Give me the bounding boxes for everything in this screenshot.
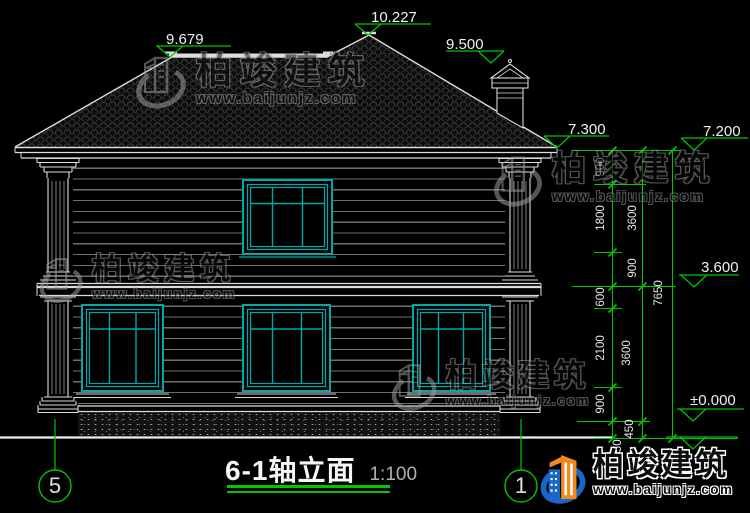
elevation-label-front-ridge: 9.679 [166,31,204,48]
belt-course [37,284,541,297]
brand-logo: 柏竣建筑 www.baijunjz.com [540,449,734,507]
dim-storey-0: 3600 [627,205,639,231]
elevation-drawing-canvas: 9.679 10.227 9.500 7.300 7.200 3.600 ±0.… [0,0,750,513]
dim-detail-1: 1800 [595,205,607,231]
eave-fascia [15,148,557,159]
brand-logo-text: 柏竣建筑 [593,449,734,482]
drawing-title: 6-1轴立面1:100 [225,449,417,489]
title-underline [227,491,390,493]
dim-detail-2: 900 [627,258,639,277]
chimney [491,59,529,128]
elevation-label-chimney-top: 9.500 [446,36,484,53]
elevation-label-main-ridge: 10.227 [371,9,417,26]
elevation-label-second-floor: 3.600 [701,259,739,276]
ground-floor-window-left [74,305,171,398]
dim-storey-2: 450 [624,419,636,438]
elevation-marker-second-floor [679,275,739,287]
brand-logo-url: www.baijunjz.com [593,482,734,497]
axis-bubble-1: 1 [515,473,527,498]
drawing-scale: 1:100 [369,464,417,485]
dim-storey-1: 3600 [621,340,633,366]
elevation-label-gutter-top: 7.300 [568,121,606,138]
dim-detail-3: 600 [595,287,607,306]
ground-floor-window-right [405,305,498,398]
left-pilaster [37,159,79,437]
elevation-label-eave-soffit: 7.200 [703,123,741,140]
axis-bubble-5: 5 [49,473,61,498]
drawing-title-text: 6-1轴立面 [225,455,355,486]
dim-overall-0: 7650 [653,280,665,306]
right-pilaster [499,159,541,437]
brand-logo-icon [540,449,588,507]
dim-detail-5: 900 [595,394,607,413]
ground-floor-window-center [235,305,338,398]
elevation-label-ground-floor: ±0.000 [690,392,736,409]
linework-overlay: 9.679 10.227 9.500 7.300 7.200 3.600 ±0.… [0,0,750,513]
elevation-marker-ground-floor [677,409,744,421]
dim-detail-0: 900 [595,157,607,176]
dim-detail-4: 2100 [595,335,607,361]
title-underline [227,485,390,488]
plinth-trim [41,406,537,412]
second-floor-window [239,180,336,257]
